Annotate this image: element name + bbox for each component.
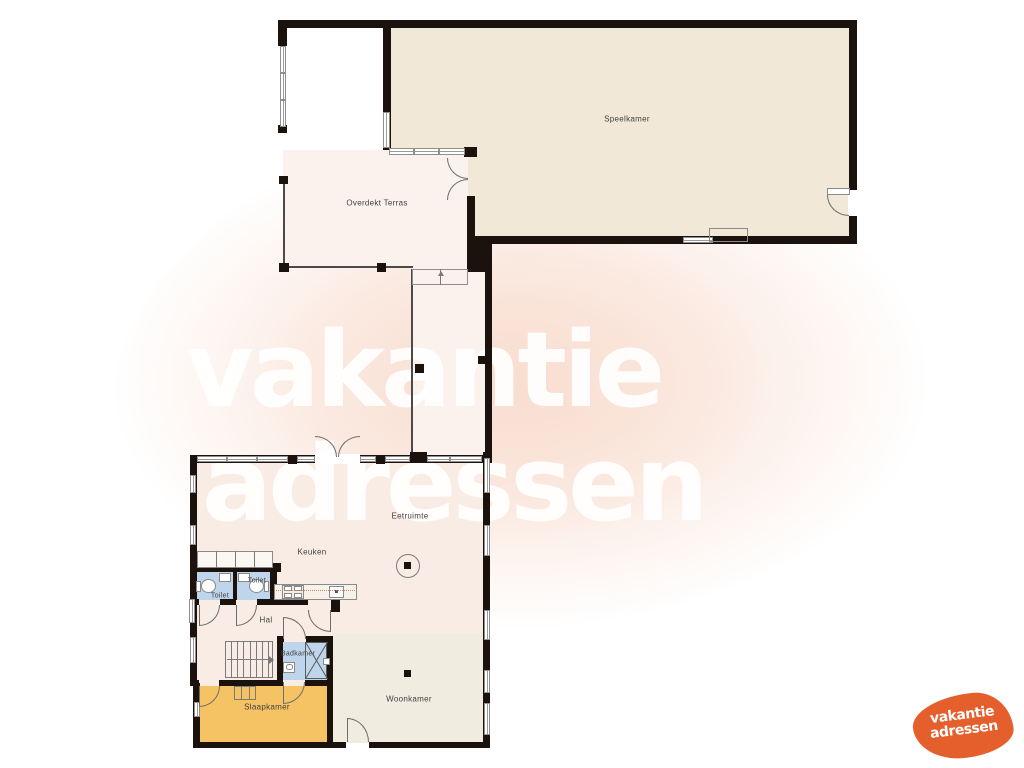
counter-dotted-line	[276, 590, 355, 591]
window	[383, 112, 390, 148]
window	[280, 100, 286, 127]
window	[197, 456, 227, 462]
wall-post	[415, 364, 424, 373]
window	[439, 148, 465, 155]
corridor-edge-line	[411, 269, 413, 457]
wall-segment	[193, 742, 346, 748]
wall-segment	[327, 680, 333, 748]
wall-segment	[467, 238, 492, 272]
speelkamer-fixture	[709, 228, 748, 242]
wall-segment	[278, 20, 857, 28]
wardrobe-divider	[241, 686, 242, 700]
window	[297, 456, 315, 462]
window	[484, 610, 490, 640]
window	[484, 458, 490, 493]
washbasin-bowl	[286, 664, 293, 670]
vakantieadressen-logo: vakantie adressen	[913, 694, 1017, 762]
wall-segment	[467, 236, 857, 244]
wall-post	[288, 455, 297, 464]
wall-post	[376, 455, 385, 464]
slaapkamer-floor	[199, 686, 327, 743]
wall-post	[331, 599, 340, 612]
room-label-toilet-2: Toilet	[248, 578, 266, 585]
window	[427, 456, 450, 462]
stove-burner	[294, 593, 302, 598]
toilet-bowl-icon	[201, 579, 216, 593]
watermark-line2: adressen	[202, 432, 705, 536]
wall-post	[273, 563, 281, 572]
room-label-toilet-1: Toilet	[211, 593, 229, 600]
wall-segment	[369, 742, 490, 748]
room-label-overdekt-terras: Overdekt Terras	[346, 199, 407, 208]
room-label-eetruimte: Eetruimte	[392, 512, 429, 521]
cabinet-divider	[216, 551, 217, 568]
door-leaf	[827, 188, 850, 195]
wall-post	[377, 263, 386, 272]
wall-post	[279, 263, 289, 272]
room-label-speelkamer: Speelkamer	[604, 115, 650, 124]
wall-post	[410, 452, 427, 463]
window	[280, 73, 286, 100]
window	[190, 475, 196, 493]
wall-post	[279, 176, 288, 184]
window	[190, 525, 196, 545]
stair-arrow-icon	[269, 656, 274, 664]
terras-edge-line	[283, 184, 285, 265]
room-label-slaapkamer: Slaapkamer	[244, 703, 290, 712]
room-marker	[404, 670, 411, 677]
step-arrow-icon	[438, 271, 444, 276]
window	[257, 456, 288, 462]
room-label-badkamer: Badkamer	[281, 651, 315, 658]
window	[484, 670, 490, 693]
wardrobe-divider	[249, 686, 250, 700]
window	[360, 456, 376, 462]
stair-direction-line	[227, 659, 271, 660]
window	[227, 456, 257, 462]
window	[450, 456, 482, 462]
floorplan-canvas: vakantie adressen	[0, 0, 1024, 768]
wall-segment	[464, 147, 477, 157]
stove-burner	[284, 593, 292, 598]
wardrobe	[234, 686, 256, 700]
window	[280, 46, 286, 73]
room-label-hal: Hal	[260, 616, 273, 625]
wall-segment	[485, 272, 492, 463]
window	[189, 599, 195, 623]
shower-control	[323, 658, 330, 665]
terras-edge-line	[283, 266, 413, 268]
window	[190, 637, 196, 663]
wall-segment	[278, 20, 287, 46]
room-label-woonkamer: Woonkamer	[386, 695, 432, 704]
window	[389, 148, 414, 155]
wall-segment	[233, 572, 237, 600]
cabinet-divider	[235, 551, 236, 568]
washbasin-icon	[219, 573, 231, 582]
room-label-keuken: Keuken	[298, 548, 327, 557]
table-marker	[404, 562, 411, 569]
wall-segment	[220, 599, 236, 605]
window	[385, 456, 410, 462]
wall-segment	[467, 196, 475, 244]
white-outbuilding-floor	[287, 28, 383, 150]
terras-floor	[283, 150, 468, 267]
wall-segment	[277, 636, 283, 683]
cabinet-divider	[254, 551, 255, 568]
wall-post	[478, 356, 486, 364]
window	[484, 703, 490, 735]
window	[484, 525, 490, 556]
window	[414, 148, 439, 155]
